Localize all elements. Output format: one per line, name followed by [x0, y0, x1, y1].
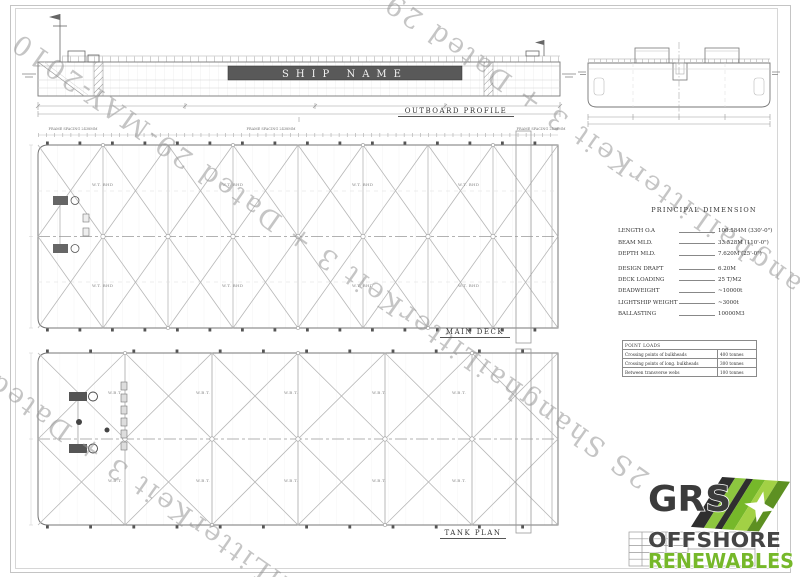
leader-line: [679, 243, 715, 244]
dimension-row: DECK LOADING 25 T/M2: [618, 272, 790, 283]
table-row: Between transverse webs 100 tonnes: [623, 368, 756, 376]
point-loads-title: POINT LOADS: [623, 341, 756, 350]
bhd-label: W.T. BHD: [458, 283, 479, 288]
table-row: Crossing points of bulkheads 400 tonnes: [623, 350, 756, 359]
tank-plan-view: [25, 348, 570, 534]
bhd-label: W.T. BHD: [222, 182, 243, 187]
drawing-sheet: SHIP NAME OUTBOARD PROFILE: [0, 0, 800, 577]
leader-line: [679, 255, 715, 256]
tank-label: W.B.T.: [452, 390, 466, 395]
dimension-row: LIGHTSHIP WEIGHT ~3000t: [618, 294, 790, 305]
dimension-label: DEADWEIGHT: [618, 288, 676, 294]
dimension-value: 33.528M (110'-0"): [718, 240, 790, 246]
bhd-label: W.T. BHD: [458, 182, 479, 187]
tank-label: W.B.T.: [196, 478, 210, 483]
dimension-value: 10000M3: [718, 311, 790, 317]
dimension-row: BALLASTING 10000M3: [618, 306, 790, 317]
dimension-value: 100.584M (330'-0"): [718, 228, 790, 234]
tank-plan-label: TANK PLAN: [440, 529, 506, 539]
mast-and-deckhouse: [49, 14, 544, 62]
point-load-value: 300 tonnes: [717, 359, 756, 367]
deck-rail: [62, 56, 560, 59]
deck-left-dimension: [29, 145, 33, 328]
dimension-row: LENGTH O.A 100.584M (330'-0"): [618, 223, 790, 234]
tank-label: W.B.T.: [108, 478, 122, 483]
bhd-label: W.T. BHD: [222, 283, 243, 288]
point-load-value: 400 tonnes: [717, 350, 756, 358]
dimension-row: DESIGN DRAFT 6.20M: [618, 260, 790, 271]
tank-left-dimension: [29, 353, 33, 525]
dimension-value: ~10000t: [718, 288, 790, 294]
dimension-label: DESIGN DRAFT: [618, 266, 676, 272]
dimension-value: 7.620M (25'-0"): [718, 251, 790, 257]
section-hull: [588, 42, 770, 114]
principal-dimensions-title: PRINCIPAL DIMENSION: [618, 206, 790, 214]
tank-label: W.B.T.: [452, 478, 466, 483]
tank-label: W.B.T.: [372, 390, 386, 395]
dimension-label: LIGHTSHIP WEIGHT: [618, 300, 676, 306]
dimension-value: 6.20M: [718, 266, 790, 272]
tank-label: W.B.T.: [284, 478, 298, 483]
main-deck-label: MAIN DECK: [440, 328, 510, 338]
dimension-label: BEAM MLD.: [618, 240, 676, 246]
tank-label: W.B.T.: [284, 390, 298, 395]
dimension-value: ~3000t: [718, 300, 790, 306]
leader-line: [679, 232, 715, 233]
tank-label: W.B.T.: [196, 390, 210, 395]
leader-line: [679, 280, 715, 281]
logo-brand-text: GRS: [648, 479, 731, 520]
principal-dimensions-block: PRINCIPAL DIMENSION LENGTH O.A 100.584M …: [618, 206, 790, 317]
grs-offshore-renewables-logo: GRS OFFSHORE RENEWABLES: [648, 477, 796, 575]
dimension-row: DEPTH MLD. 7.620M (25'-0"): [618, 246, 790, 257]
dimension-label: LENGTH O.A: [618, 228, 676, 234]
leader-line: [679, 292, 715, 293]
main-deck-view: [25, 126, 570, 348]
point-load-label: Crossing points of bulkheads: [623, 350, 717, 358]
frame-spacing-label: FRAME SPACING 2438MM: [504, 127, 578, 131]
bhd-label: W.T. BHD: [352, 182, 373, 187]
dimension-label: BALLASTING: [618, 311, 676, 317]
leader-line: [679, 269, 715, 270]
section-dimension-lines: [588, 114, 770, 127]
frame-spacing-label: FRAME SPACING 2438MM: [234, 127, 308, 131]
tank-label: W.B.T.: [108, 390, 122, 395]
leader-line: [679, 303, 715, 304]
dimension-row: DEADWEIGHT ~10000t: [618, 283, 790, 294]
point-load-label: Crossing points of long. bulkheads: [623, 359, 717, 367]
dimension-label: DEPTH MLD.: [618, 251, 676, 257]
bhd-label: W.T. BHD: [92, 283, 113, 288]
outboard-profile-label: OUTBOARD PROFILE: [398, 107, 514, 117]
dimension-row: BEAM MLD. 33.528M (110'-0"): [618, 234, 790, 245]
table-row: Crossing points of long. bulkheads 300 t…: [623, 359, 756, 368]
dimension-value: 25 T/M2: [718, 277, 790, 283]
point-load-label: Between transverse webs: [623, 368, 717, 376]
leader-line: [679, 315, 715, 316]
bhd-label: W.T. BHD: [352, 283, 373, 288]
ship-name-text: SHIP NAME: [282, 69, 408, 80]
frame-spacing-label: FRAME SPACING 2438MM: [36, 127, 110, 131]
point-loads-table: POINT LOADS Crossing points of bulkheads…: [622, 340, 757, 377]
logo-renewables-text: RENEWABLES: [648, 549, 794, 573]
ship-name-band: SHIP NAME: [228, 66, 462, 80]
transverse-section-view: [578, 38, 796, 130]
point-load-value: 100 tonnes: [717, 368, 756, 376]
dimension-label: DECK LOADING: [618, 277, 676, 283]
bhd-label: W.T. BHD: [92, 182, 113, 187]
tank-label: W.B.T.: [372, 478, 386, 483]
